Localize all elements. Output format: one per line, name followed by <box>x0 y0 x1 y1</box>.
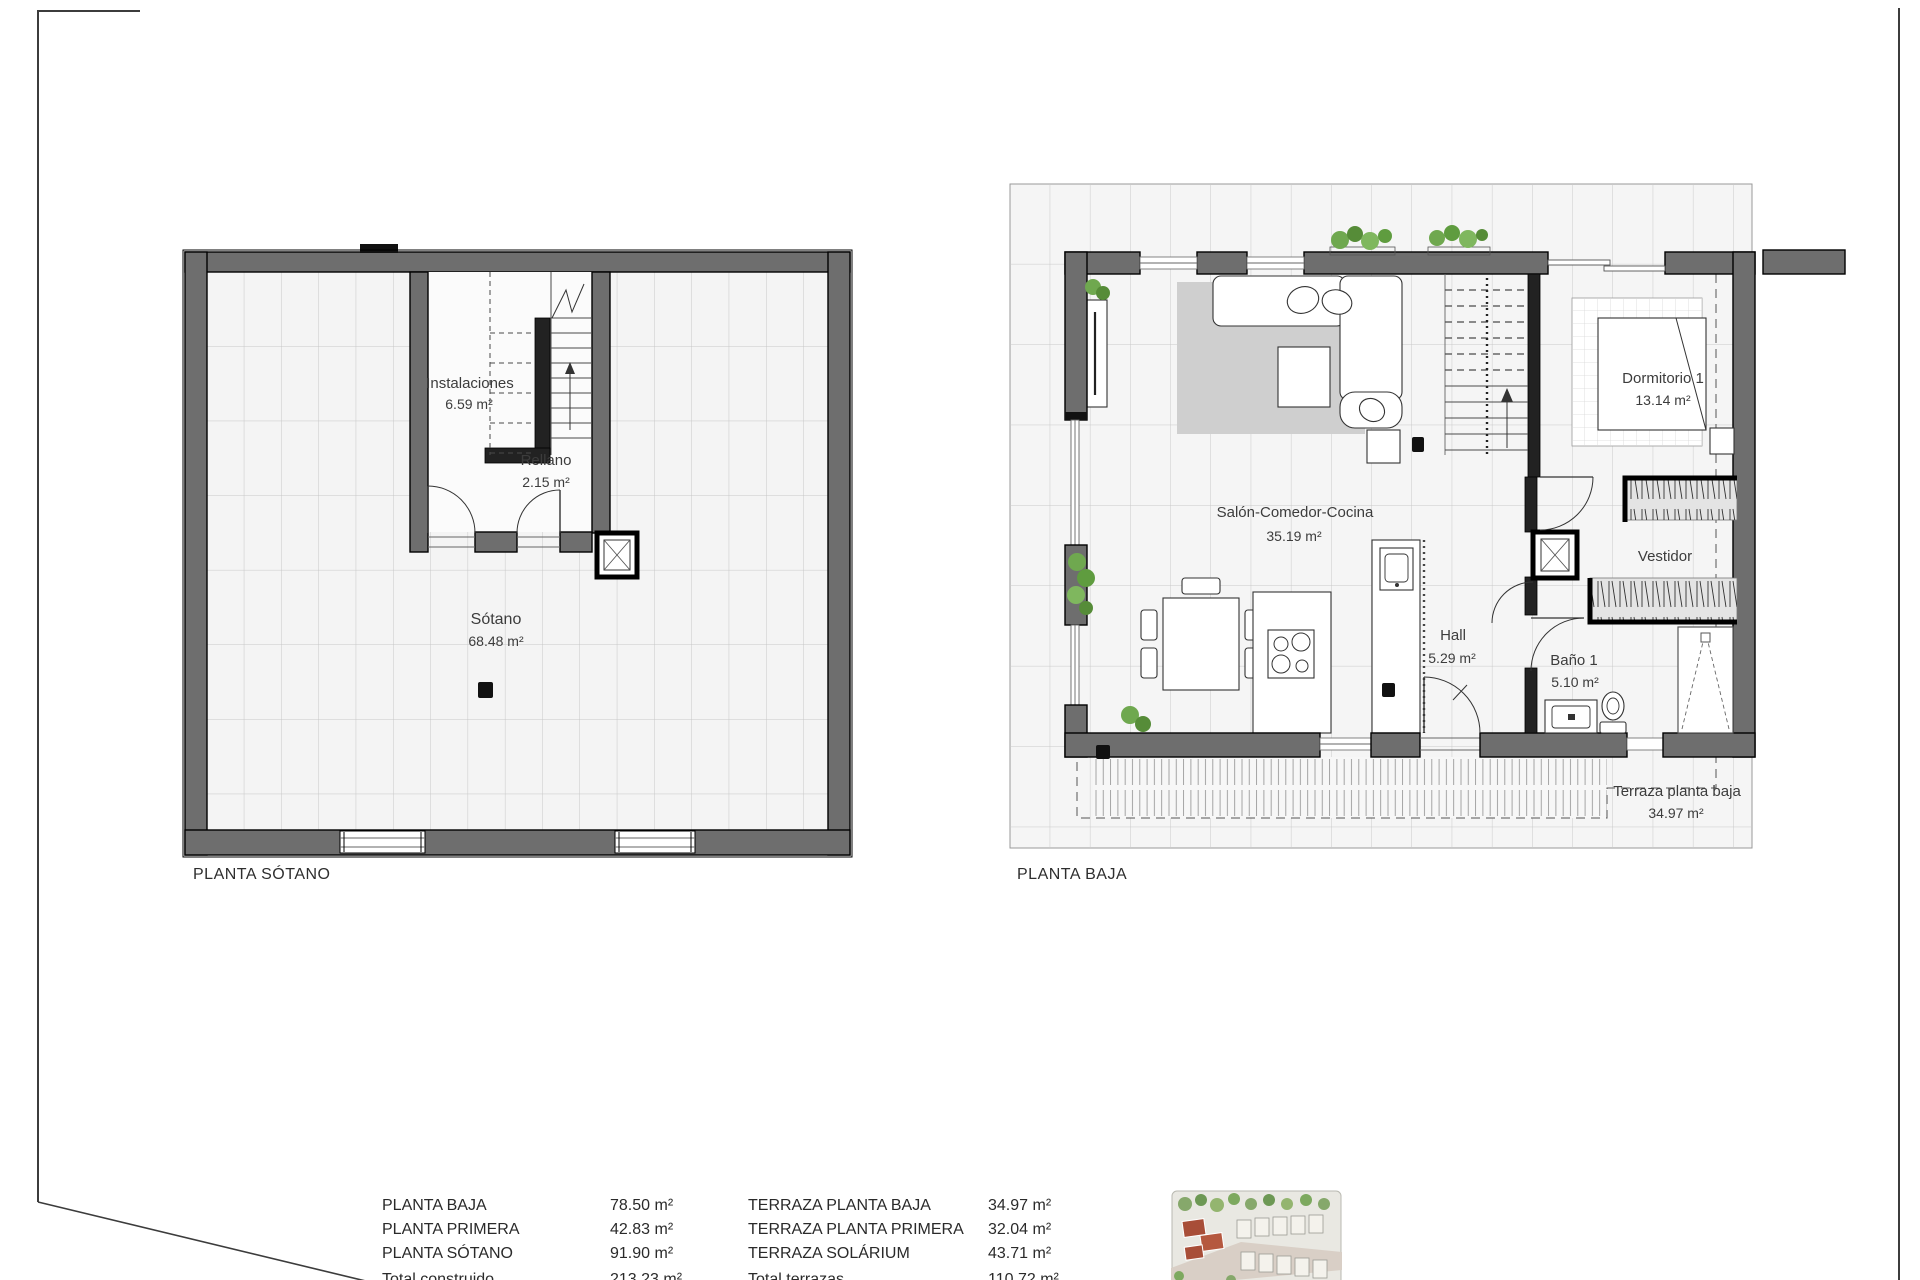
floorplan-sotano: Instalaciones 6.59 m² Rellano 2.15 m² Só… <box>150 240 890 900</box>
nightstand <box>1710 428 1734 454</box>
table-row-value: 78.50 m² <box>610 1197 673 1215</box>
site-plan-thumbnail <box>1171 1190 1342 1280</box>
room-area: 6.59 m² <box>445 396 493 412</box>
room-area: 2.15 m² <box>522 474 570 490</box>
sotano-window <box>615 831 695 853</box>
sofa <box>1340 276 1402 400</box>
table-row-value: 110.72 m² <box>988 1271 1059 1280</box>
elevator-icon <box>597 533 637 577</box>
table-row-label: Total terrazas <box>748 1271 844 1280</box>
room-label: Baño 1 <box>1550 652 1598 669</box>
table-row-value: 91.90 m² <box>610 1245 673 1263</box>
room-area: 5.10 m² <box>1551 674 1599 690</box>
table-row-label: TERRAZA PLANTA BAJA <box>748 1197 931 1215</box>
shower <box>1678 627 1733 733</box>
room-label: Instalaciones <box>426 375 514 392</box>
table-row-label: TERRAZA SOLÁRIUM <box>748 1245 910 1263</box>
room-area: 13.14 m² <box>1635 392 1691 408</box>
room-label: Vestidor <box>1638 548 1692 565</box>
room-label: Dormitorio 1 <box>1622 370 1704 387</box>
neighbour-wall-stub <box>1763 250 1845 274</box>
table-row-value: 43.71 m² <box>988 1245 1051 1263</box>
plan-title-sotano: PLANTA SÓTANO <box>193 866 331 884</box>
plan-title-baja: PLANTA BAJA <box>1017 866 1127 884</box>
room-area: 68.48 m² <box>468 633 524 649</box>
table-row-label: Total construido <box>382 1271 494 1280</box>
partition-walls <box>1525 477 1537 733</box>
table-row-value: 32.04 m² <box>988 1221 1051 1239</box>
terrace-decking <box>1093 757 1607 818</box>
table-row-label: TERRAZA PLANTA PRIMERA <box>748 1221 964 1239</box>
room-area: 35.19 m² <box>1266 528 1322 544</box>
floorplan-baja: Salón-Comedor-Cocina 35.19 m² Dormitorio… <box>1000 175 1860 865</box>
tv-cabinet <box>1087 300 1107 407</box>
room-label: Hall <box>1440 627 1466 644</box>
kitchen-island <box>1253 592 1331 733</box>
sotano-stair-block <box>410 272 610 552</box>
room-area: 34.97 m² <box>1648 805 1704 821</box>
room-label: Terraza planta baja <box>1613 783 1741 800</box>
kitchen-counter <box>1372 540 1424 733</box>
side-table <box>1367 430 1400 463</box>
table-row-value: 213.23 m² <box>610 1271 682 1280</box>
table-row-label: PLANTA SÓTANO <box>382 1245 513 1263</box>
room-label: Sótano <box>471 611 522 628</box>
room-area: 5.29 m² <box>1428 650 1476 666</box>
toilet <box>1600 692 1626 733</box>
table-row-label: PLANTA PRIMERA <box>382 1221 520 1239</box>
coffee-table <box>1278 347 1330 407</box>
table-row-value: 34.97 m² <box>988 1197 1051 1215</box>
table-row-label: PLANTA BAJA <box>382 1197 487 1215</box>
sotano-window <box>340 831 425 853</box>
room-label: Salón-Comedor-Cocina <box>1217 504 1374 521</box>
elevator-icon <box>1533 532 1577 578</box>
plan-sheet: Instalaciones 6.59 m² Rellano 2.15 m² Só… <box>0 0 1920 1280</box>
room-label: Rellano <box>521 452 572 469</box>
structural-column <box>478 682 493 698</box>
table-row-value: 42.83 m² <box>610 1221 673 1239</box>
